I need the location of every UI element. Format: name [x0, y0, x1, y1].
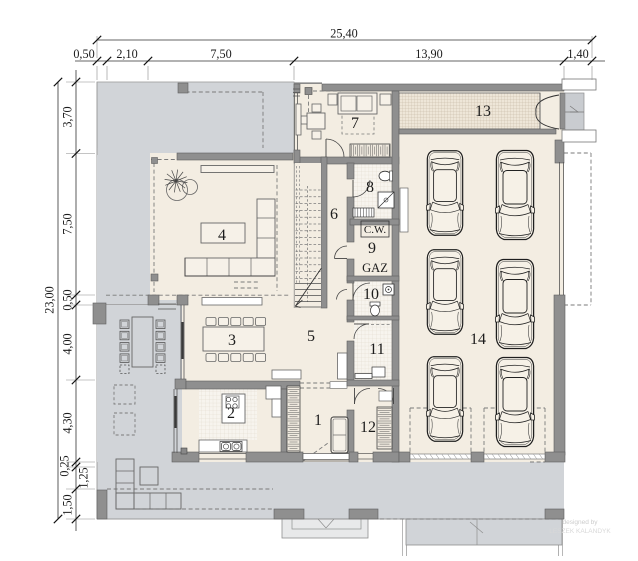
- svg-text:1,40: 1,40: [567, 47, 588, 61]
- svg-text:23,00: 23,00: [43, 286, 57, 313]
- svg-text:0,50: 0,50: [61, 289, 75, 310]
- svg-text:14: 14: [470, 331, 486, 348]
- svg-text:designed by: designed by: [562, 519, 598, 526]
- svg-text:1,50: 1,50: [61, 494, 75, 515]
- svg-text:5: 5: [307, 328, 315, 345]
- svg-text:GAZ: GAZ: [362, 261, 388, 275]
- svg-text:0,25: 0,25: [58, 455, 72, 476]
- svg-text:3: 3: [228, 332, 236, 349]
- svg-text:25,40: 25,40: [330, 27, 357, 41]
- svg-text:C.W.: C.W.: [364, 224, 386, 236]
- svg-text:1: 1: [314, 412, 322, 429]
- svg-text:4: 4: [218, 227, 226, 244]
- svg-text:10: 10: [363, 286, 379, 303]
- svg-text:9: 9: [368, 240, 376, 257]
- svg-text:2,10: 2,10: [116, 47, 137, 61]
- svg-text:7: 7: [351, 115, 359, 132]
- svg-text:1,25: 1,25: [77, 467, 91, 488]
- svg-text:7,50: 7,50: [61, 213, 75, 234]
- svg-text:4,00: 4,00: [61, 333, 75, 354]
- svg-text:13,90: 13,90: [415, 47, 442, 61]
- svg-text:13: 13: [475, 103, 491, 120]
- svg-text:2: 2: [227, 405, 235, 422]
- svg-text:LESZEK KALANDYK: LESZEK KALANDYK: [549, 528, 611, 535]
- svg-text:8: 8: [366, 179, 374, 196]
- svg-text:7,50: 7,50: [210, 47, 231, 61]
- svg-text:0,50: 0,50: [73, 47, 94, 61]
- svg-text:3,70: 3,70: [61, 106, 75, 127]
- svg-text:4,30: 4,30: [61, 412, 75, 433]
- svg-text:11: 11: [369, 341, 384, 358]
- svg-text:6: 6: [330, 206, 338, 223]
- svg-text:12: 12: [360, 419, 376, 436]
